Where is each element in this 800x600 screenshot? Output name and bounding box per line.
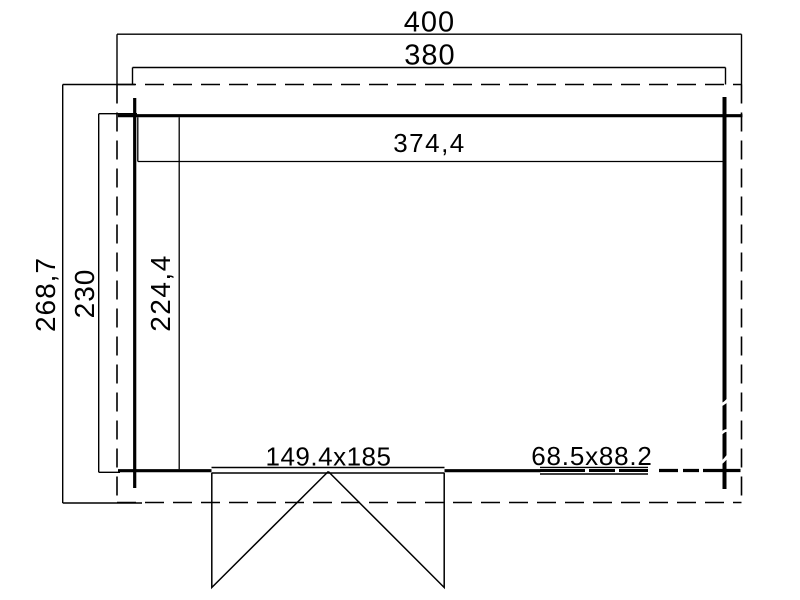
- svg-text:230: 230: [69, 269, 100, 319]
- svg-text:380: 380: [404, 40, 455, 72]
- svg-text:400: 400: [404, 7, 455, 39]
- svg-text:268,7: 268,7: [30, 257, 61, 332]
- svg-text:224,4: 224,4: [145, 254, 176, 332]
- svg-text:149.4x185: 149.4x185: [266, 442, 392, 472]
- svg-text:68.5x88.2: 68.5x88.2: [531, 441, 652, 471]
- svg-text:374,4: 374,4: [393, 128, 466, 158]
